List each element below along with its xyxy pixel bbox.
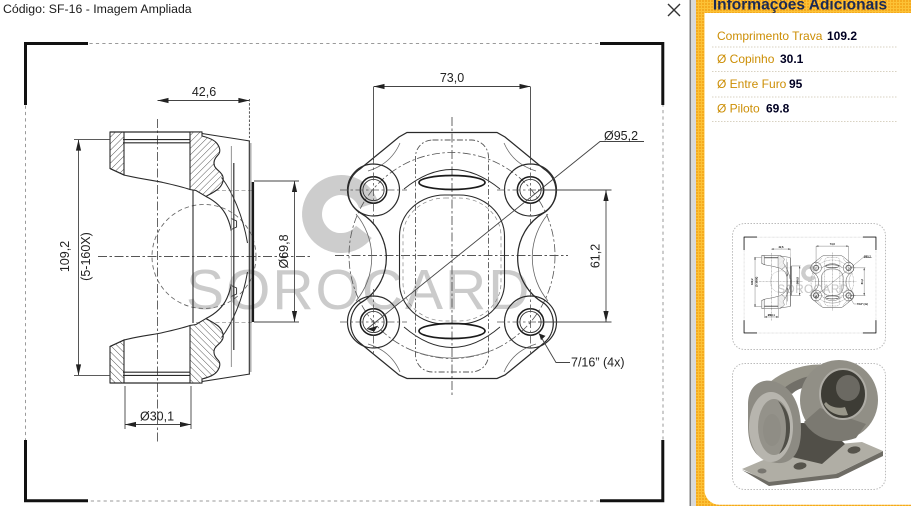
svg-text:30.1: 30.1 [780,52,804,66]
svg-text:Comprimento Trava: Comprimento Trava [717,29,823,43]
svg-text:Ø30,1: Ø30,1 [140,410,174,424]
svg-text:Ø Piloto: Ø Piloto [717,102,760,116]
svg-text:95: 95 [789,77,803,91]
svg-text:109,2: 109,2 [58,241,72,272]
svg-text:(5-160X): (5-160X) [79,232,93,281]
svg-text:Código: SF-16 - Imagem Ampliad: Código: SF-16 - Imagem Ampliada [3,2,192,16]
svg-text:7/16” (4x): 7/16” (4x) [571,356,625,370]
svg-text:73,0: 73,0 [440,71,464,85]
svg-text:42,6: 42,6 [192,85,216,99]
svg-text:61,2: 61,2 [589,244,603,268]
svg-text:Ø Entre Furo: Ø Entre Furo [717,77,787,91]
svg-text:109.2: 109.2 [827,29,857,43]
svg-text:Ø95,2: Ø95,2 [604,129,638,143]
svg-text:Ø69,8: Ø69,8 [277,234,291,268]
svg-text:Informações Adicionais: Informações Adicionais [713,0,887,14]
svg-text:69.8: 69.8 [766,102,790,116]
svg-text:Ø Copinho: Ø Copinho [717,52,775,66]
svg-text:SOROCARD: SOROCARD [186,258,531,322]
